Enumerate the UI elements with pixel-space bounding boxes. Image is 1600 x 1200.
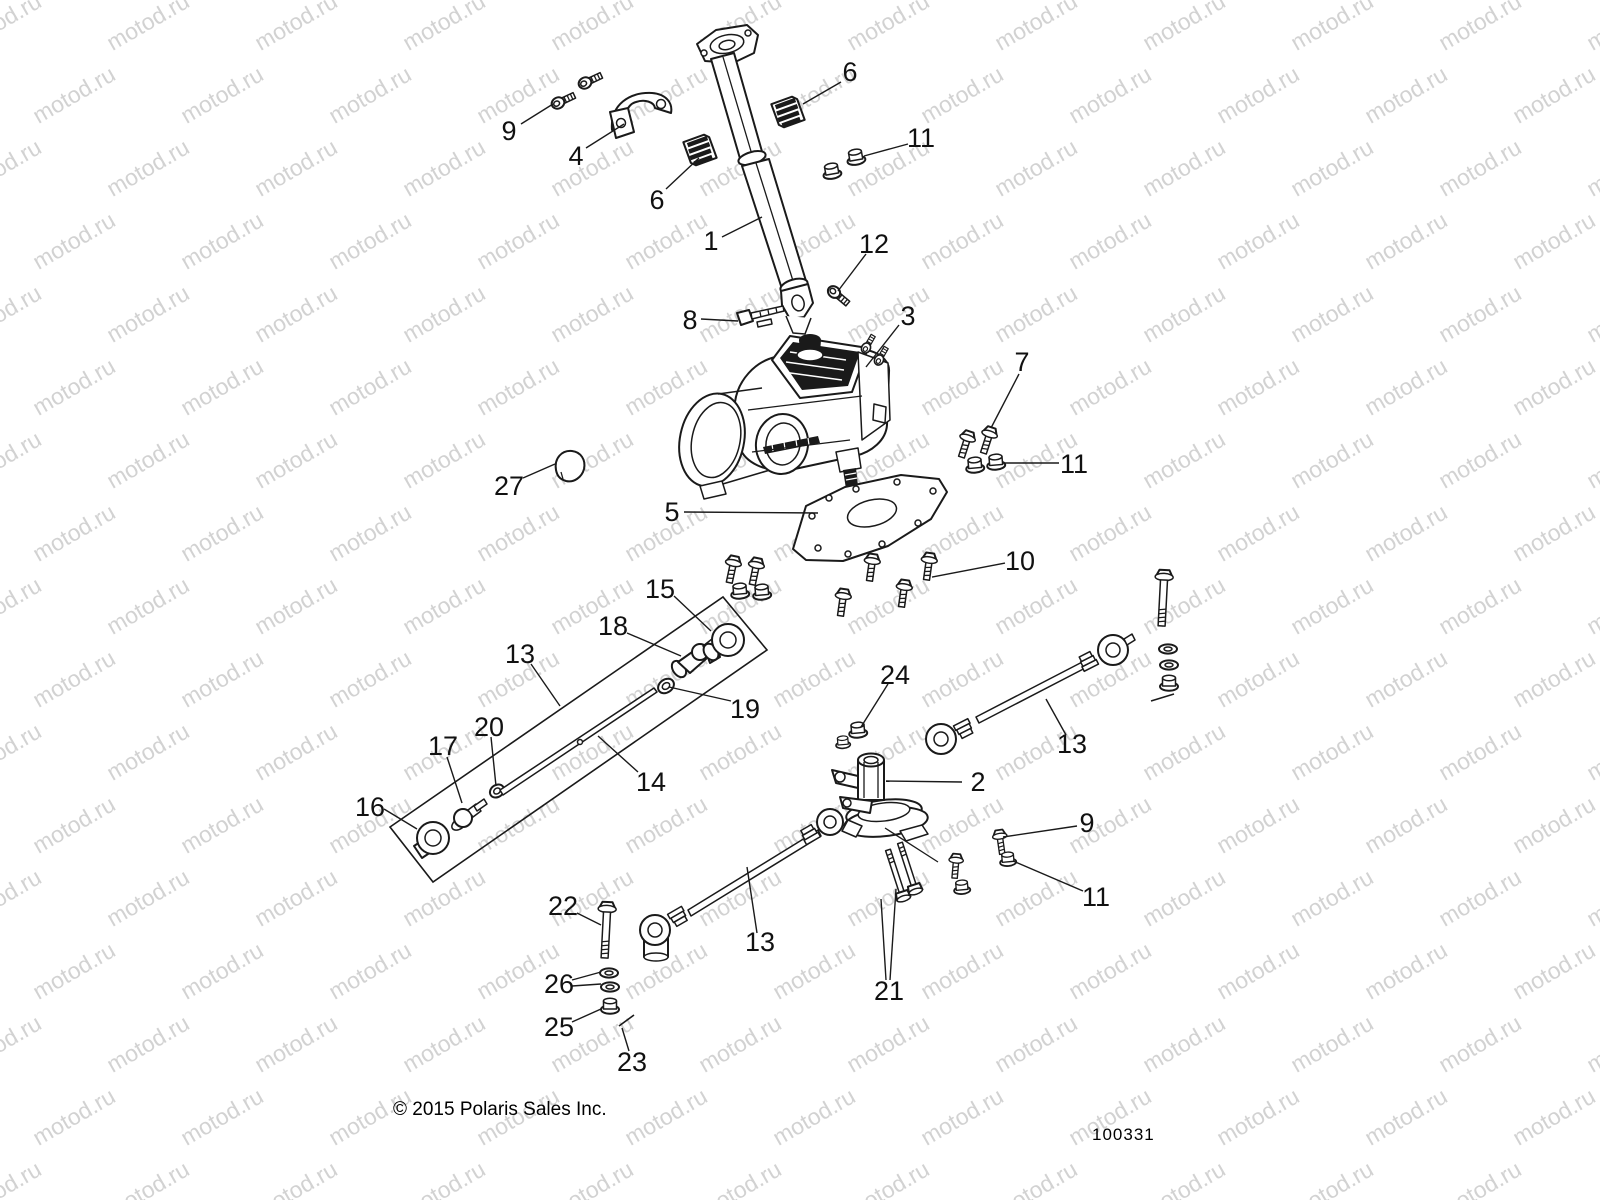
leader-line	[890, 889, 896, 980]
tie-rod-exploded	[414, 624, 744, 858]
callout-17: 17	[428, 731, 462, 803]
callout-number: 9	[1079, 808, 1094, 838]
callout-number: 11	[1060, 449, 1088, 479]
callout-number: 5	[664, 497, 679, 527]
eps-gearbox	[671, 333, 890, 499]
leader-line	[531, 664, 560, 706]
callout-5: 5	[664, 497, 818, 527]
callout-9: 9	[1003, 808, 1095, 838]
tie-rod-end-15	[701, 624, 744, 663]
leader-line	[886, 781, 962, 782]
callout-number: 16	[355, 792, 385, 822]
callout-number: 24	[880, 660, 910, 690]
diagram-code: 100331	[1092, 1125, 1155, 1145]
callout-number: 13	[745, 927, 775, 957]
callout-21: 21	[874, 889, 904, 1006]
drag-link-fasteners	[596, 902, 634, 1026]
callout-number: 17	[428, 731, 458, 761]
callout-25: 25	[544, 1009, 601, 1042]
steering-pivot	[832, 754, 938, 863]
callout-number: 10	[1005, 546, 1035, 576]
callout-2: 2	[886, 767, 986, 797]
leader-line	[861, 684, 888, 727]
callout-9: 9	[501, 104, 553, 146]
leader-line	[666, 158, 699, 189]
leader-line	[572, 1009, 601, 1022]
callout-13: 13	[505, 639, 560, 706]
right-fastener-stack	[1151, 570, 1178, 701]
leader-line	[864, 144, 908, 156]
callout-24: 24	[861, 660, 910, 727]
leader-line	[838, 254, 866, 291]
mount-plate-gasket	[793, 475, 947, 561]
callout-number: 23	[617, 1047, 647, 1077]
seal-ring	[556, 451, 585, 481]
callout-22: 22	[548, 891, 601, 925]
callout-number: 2	[970, 767, 985, 797]
callout-number: 12	[859, 229, 889, 259]
column-lower-bolt	[825, 284, 851, 308]
callout-11: 11	[864, 123, 935, 156]
callout-3: 3	[866, 301, 916, 367]
steering-column	[697, 25, 813, 334]
callout-6: 6	[649, 158, 699, 215]
callout-13: 13	[1046, 699, 1087, 759]
callout-7: 7	[991, 347, 1030, 428]
callout-26: 26	[544, 969, 601, 999]
column-bushing-right	[771, 95, 804, 128]
callout-10: 10	[932, 546, 1035, 577]
leader-line	[722, 217, 762, 237]
leader-line	[674, 596, 711, 631]
callout-number: 19	[730, 694, 760, 724]
callout-number: 6	[842, 57, 857, 87]
plate-fasteners	[721, 552, 938, 617]
leader-line	[684, 512, 818, 513]
callout-number: 13	[505, 639, 535, 669]
callout-11: 11	[1003, 449, 1088, 479]
callout-19: 19	[669, 687, 760, 724]
callout-number: 9	[501, 116, 516, 146]
callout-14: 14	[598, 736, 666, 797]
callout-number: 20	[474, 712, 504, 742]
callout-number: 25	[544, 1012, 574, 1042]
leader-line	[991, 374, 1019, 428]
callout-number: 26	[544, 969, 574, 999]
pivot-bolts	[881, 841, 923, 903]
callout-13: 13	[745, 867, 775, 957]
leader-line	[598, 736, 638, 772]
leader-line	[669, 687, 731, 701]
callout-number: 21	[874, 976, 904, 1006]
callout-number: 11	[1082, 882, 1110, 912]
pinch-bolt	[737, 306, 784, 327]
callout-number: 22	[548, 891, 578, 921]
callout-27: 27	[494, 464, 555, 501]
column-bushing-left	[683, 133, 716, 166]
leader-line	[1003, 826, 1077, 837]
callout-6: 6	[803, 57, 858, 104]
callout-23: 23	[617, 1028, 647, 1077]
callout-11: 11	[1013, 861, 1110, 912]
leader-line	[572, 972, 601, 980]
callout-number: 6	[649, 185, 664, 215]
callout-number: 15	[645, 574, 675, 604]
callout-number: 13	[1057, 729, 1087, 759]
leader-line	[447, 757, 462, 803]
leader-line	[803, 82, 841, 104]
leader-line	[932, 563, 1005, 577]
pivot-fasteners	[947, 829, 1016, 895]
callout-number: 1	[703, 226, 718, 256]
callout-16: 16	[355, 792, 417, 829]
leader-line	[523, 464, 555, 478]
callout-12: 12	[838, 229, 889, 291]
callout-number: 11	[907, 123, 935, 153]
leader-line	[701, 319, 738, 321]
leader-line	[881, 899, 886, 980]
column-clamp	[610, 93, 671, 138]
callout-number: 4	[568, 141, 583, 171]
copyright-text: © 2015 Polaris Sales Inc.	[393, 1099, 607, 1121]
callout-1: 1	[703, 217, 762, 256]
callout-20: 20	[474, 712, 504, 786]
leader-line	[572, 984, 601, 986]
jam-nut-19	[655, 676, 676, 696]
callout-15: 15	[645, 574, 711, 631]
tie-rod-lower	[640, 809, 843, 961]
callout-number: 18	[598, 611, 628, 641]
leader-line	[577, 913, 601, 925]
leader-line	[627, 633, 681, 656]
leader-line	[1013, 861, 1083, 891]
column-mount-screws	[550, 70, 604, 110]
callout-8: 8	[682, 305, 738, 335]
parts-diagram-page: motod.rumotod.rumotod.rumotod.rumotod.ru…	[0, 0, 1600, 1200]
tie-rod-right	[926, 634, 1135, 754]
exploded-parts-diagram: 1234566789910111111121313131415161718192…	[0, 0, 1600, 1200]
callout-number: 14	[636, 767, 666, 797]
gearbox-bolts	[954, 425, 1006, 473]
callout-number: 27	[494, 471, 524, 501]
callout-number: 3	[900, 301, 915, 331]
callout-18: 18	[598, 611, 681, 656]
leader-line	[491, 737, 496, 786]
leader-line	[521, 104, 553, 124]
flange-nuts-top	[822, 148, 866, 180]
callout-number: 7	[1014, 347, 1029, 377]
callout-number: 8	[682, 305, 697, 335]
